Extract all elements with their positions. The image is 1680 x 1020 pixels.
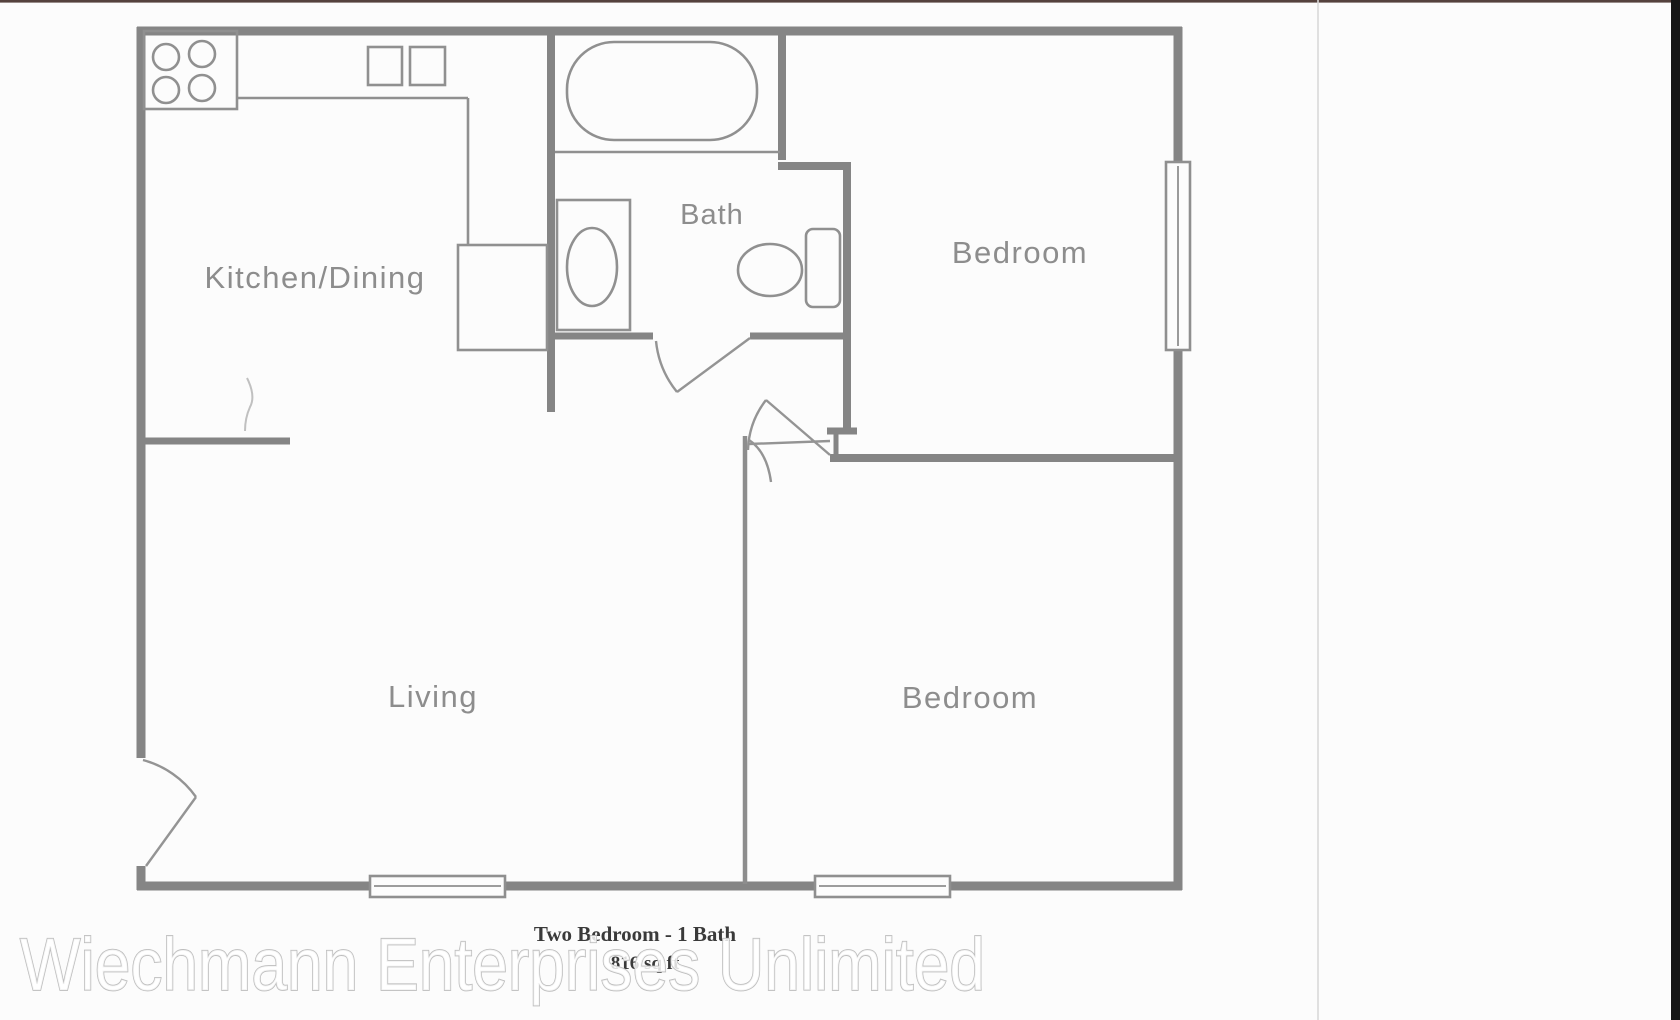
scanned-floor-plan-photo: Kitchen/Dining Bath Bedroom Living Bedro… bbox=[0, 0, 1680, 1020]
room-label-bedroom-bottom: Bedroom bbox=[902, 680, 1038, 715]
room-label-living: Living bbox=[388, 679, 478, 714]
window-bedroom-right bbox=[1166, 162, 1190, 350]
window-bedroom-bottom bbox=[815, 876, 950, 897]
room-label-kitchen-dining: Kitchen/Dining bbox=[205, 260, 426, 295]
scan-top-border bbox=[0, 0, 1680, 3]
paper-background bbox=[0, 0, 1680, 1020]
scan-right-edge-bar bbox=[1671, 0, 1680, 1020]
floor-plan-drawing: Kitchen/Dining Bath Bedroom Living Bedro… bbox=[0, 0, 1680, 1020]
room-label-bath: Bath bbox=[680, 199, 744, 231]
room-label-bedroom-top: Bedroom bbox=[952, 235, 1088, 270]
watermark-text: Wiechmann Enterprises Unlimited bbox=[20, 923, 985, 1006]
toilet-tank-icon bbox=[806, 229, 840, 307]
window-living-bottom bbox=[370, 876, 505, 897]
